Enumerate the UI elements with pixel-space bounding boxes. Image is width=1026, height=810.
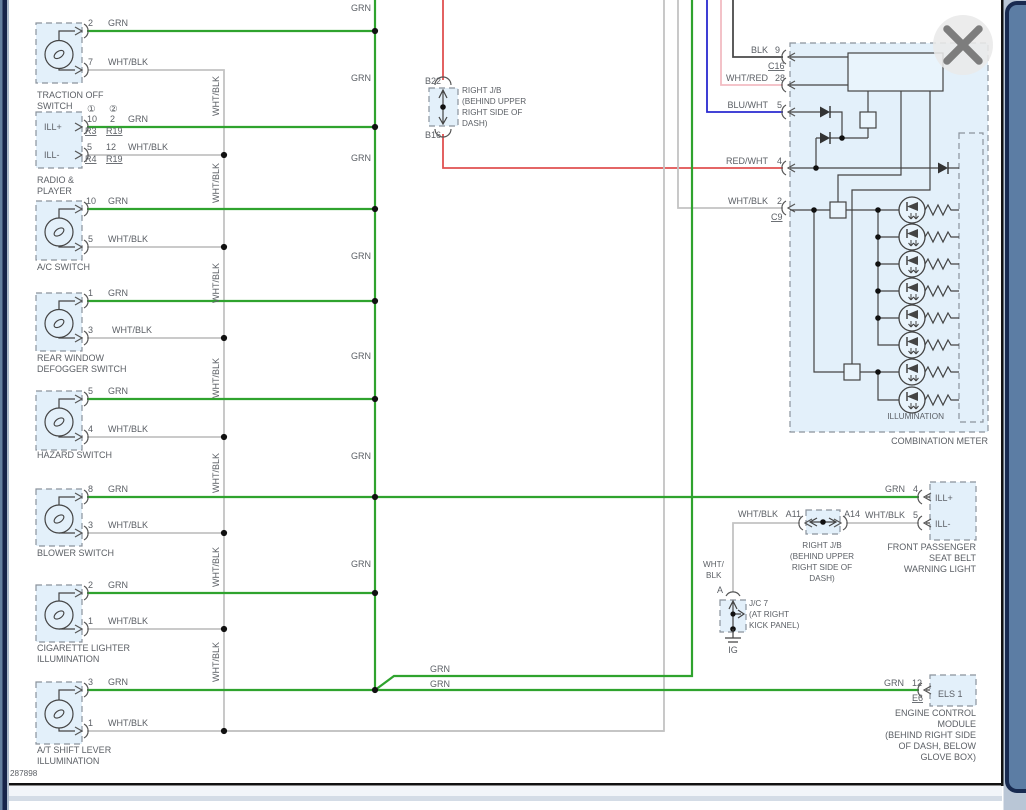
lamp-icon — [899, 305, 925, 331]
pin-number: 2 — [777, 196, 782, 206]
wire-color-label: WHT/BLK — [108, 57, 148, 67]
radio-ill-minus-label: ILL- — [44, 150, 60, 160]
component-label: FRONT PASSENGER — [887, 542, 976, 552]
pin-number: 10 — [86, 196, 96, 206]
pin-number: 4 — [913, 484, 918, 494]
whtblk-bus-label: WHT/BLK — [211, 76, 221, 116]
grn-branch-label: GRN — [430, 679, 450, 689]
pin-number: 5 — [88, 386, 93, 396]
pin-number: 2 — [88, 580, 93, 590]
grn-bus-label: GRN — [351, 3, 371, 13]
bulb-icon — [45, 601, 73, 629]
lamp-icon — [899, 332, 925, 358]
component-label: RIGHT J/B — [462, 86, 502, 95]
bulb-icon — [45, 505, 73, 533]
pin-number: 1 — [88, 616, 93, 626]
pin-number: 12 — [912, 678, 922, 688]
wire-color-label: GRN — [108, 484, 128, 494]
lamp-icon — [899, 197, 925, 223]
pin-number: 2 — [110, 114, 115, 124]
pin-number: 9 — [775, 45, 780, 55]
pin-number: 28 — [775, 73, 785, 83]
lamp-icon — [899, 359, 925, 385]
component-label: A/C SWITCH — [37, 262, 90, 272]
pin-number: 1 — [88, 718, 93, 728]
component-label: RIGHT SIDE OF — [462, 108, 522, 117]
component-label: (BEHIND UPPER — [790, 552, 854, 561]
connector-ref: R4 — [85, 154, 97, 164]
component-label: CIGARETTE LIGHTER — [37, 643, 131, 653]
grn-bus-label: GRN — [351, 153, 371, 163]
pin-number: 1 — [88, 288, 93, 298]
component-label: ILLUMINATION — [37, 756, 99, 766]
grn-bus-label: GRN — [351, 451, 371, 461]
connector-id: A — [717, 585, 723, 595]
wire-color-label: BLK — [751, 45, 768, 55]
wire-color-label: WHT/BLK — [108, 424, 148, 434]
whtblk-bus-label: WHT/BLK — [211, 358, 221, 398]
scrollbar-panel[interactable] — [1007, 3, 1026, 791]
component-block — [844, 364, 860, 380]
pin-number: 5 — [777, 100, 782, 110]
component-label: PLAYER — [37, 186, 72, 196]
component-label: SWITCH — [37, 101, 73, 111]
pin-number: 2 — [88, 18, 93, 28]
bulb-icon — [45, 218, 73, 246]
component-label: REAR WINDOW — [37, 353, 105, 363]
connector-ref: R19 — [106, 126, 123, 136]
wire-color-label: WHT/BLK — [108, 616, 148, 626]
lamp-icon — [899, 224, 925, 250]
component-label: KICK PANEL) — [749, 621, 800, 630]
pin-number: 3 — [88, 520, 93, 530]
lamp-icon — [899, 387, 925, 413]
radio-ill-plus-label: ILL+ — [44, 122, 62, 132]
component-label: HAZARD SWITCH — [37, 450, 112, 460]
wire-color-label: RED/WHT — [726, 156, 768, 166]
pin-number: 5 — [87, 142, 92, 152]
page-gap — [9, 786, 1002, 796]
component-label: A/T SHIFT LEVER — [37, 745, 112, 755]
wire-color-label: WHT/BLK — [128, 142, 168, 152]
pin-number: 3 — [88, 677, 93, 687]
page-bottom-border — [9, 783, 1002, 786]
bulb-icon — [45, 310, 73, 338]
wire-color-label: WHT/ — [703, 560, 725, 569]
component-label: DASH) — [809, 574, 835, 583]
connector-ref: E6 — [912, 693, 923, 703]
lamp-icon — [899, 278, 925, 304]
page-right-border — [1001, 0, 1004, 786]
whtblk-bus-label: WHT/BLK — [211, 642, 221, 682]
component-label: ILLUMINATION — [37, 654, 99, 664]
component-label: (BEHIND UPPER — [462, 97, 526, 106]
pin-number: 5 — [913, 510, 918, 520]
component-label: ENGINE CONTROL — [895, 708, 976, 718]
wire-color-label: BLU/WHT — [728, 100, 769, 110]
pin-number: 4 — [88, 424, 93, 434]
bulb-icon — [45, 408, 73, 436]
pin-number: 12 — [106, 142, 116, 152]
component-label: WARNING LIGHT — [904, 564, 977, 574]
component-label: DASH) — [462, 119, 488, 128]
wire-color-label: WHT/BLK — [108, 718, 148, 728]
pin-number: 4 — [777, 156, 782, 166]
component-block — [860, 112, 876, 128]
component-label: RIGHT J/B — [802, 541, 842, 550]
bulb-icon — [45, 700, 73, 728]
connector-id: B22 — [425, 76, 441, 86]
component-label: DEFOGGER SWITCH — [37, 364, 127, 374]
bulb-icon — [45, 41, 73, 69]
component-label: MODULE — [937, 719, 976, 729]
whtblk-bus-label: WHT/BLK — [211, 163, 221, 203]
wire-color-label: GRN — [108, 580, 128, 590]
diagram-id: 287898 — [10, 769, 38, 778]
lamp-icon — [899, 251, 925, 277]
connector-id: A11 — [786, 509, 801, 519]
component-label: GLOVE BOX) — [920, 752, 976, 762]
frame-left-outer — [0, 0, 3, 810]
grn-bus-label: GRN — [351, 251, 371, 261]
component-label: COMBINATION METER — [891, 436, 988, 446]
wire-color-label: WHT/BLK — [738, 509, 778, 519]
grn-bus-label: GRN — [351, 73, 371, 83]
meter-module — [848, 53, 943, 91]
connector-id: B16 — [425, 130, 441, 140]
wire-color-label: WHT/BLK — [108, 520, 148, 530]
whtblk-bus-label: WHT/BLK — [211, 547, 221, 587]
component-label: BLOWER SWITCH — [37, 548, 114, 558]
terminal-label: ELS 1 — [938, 689, 963, 699]
component-label: RADIO & — [37, 175, 74, 185]
frame-left-highlight — [7, 0, 9, 810]
pin-number: 8 — [88, 484, 93, 494]
component-label: (BEHIND RIGHT SIDE — [885, 730, 976, 740]
connector-ref: R19 — [106, 154, 123, 164]
wire-color-label: GRN — [884, 678, 904, 688]
component-label: SEAT BELT — [929, 553, 977, 563]
connector-id: A14 — [844, 509, 860, 519]
close-button[interactable] — [933, 15, 993, 75]
wire-color-label: WHT/RED — [726, 73, 768, 83]
wiring-diagram-viewer: GRN GRN GRN GRN GRN GRN GRN WHT/BLK WHT/… — [0, 0, 1026, 810]
connector-ref: C9 — [771, 212, 783, 222]
wire-color-label: GRN — [108, 677, 128, 687]
pin-number: 3 — [88, 325, 93, 335]
terminal-label: ILL+ — [935, 493, 953, 503]
grn-bus-label: GRN — [351, 351, 371, 361]
wire-color-label: GRN — [108, 196, 128, 206]
connector-ref: R3 — [85, 126, 97, 136]
frame-left-inner — [3, 0, 8, 810]
connector-ref: C16 — [768, 61, 785, 71]
illumination-label: ILLUMINATION — [887, 412, 944, 421]
pin-number: 10 — [87, 114, 97, 124]
wire-color-label: GRN — [885, 484, 905, 494]
wire-color-label: WHT/BLK — [112, 325, 152, 335]
component-label: RIGHT SIDE OF — [792, 563, 852, 572]
component-label: TRACTION OFF — [37, 90, 104, 100]
whtblk-bus-label: WHT/BLK — [211, 453, 221, 493]
component-block — [830, 202, 846, 218]
wire-color-label: GRN — [108, 18, 128, 28]
wire-color-label: GRN — [128, 114, 148, 124]
next-page-edge — [9, 796, 1002, 801]
component-label: J/C 7 — [749, 599, 769, 608]
grn-branch-label: GRN — [430, 664, 450, 674]
wire-color-label: BLK — [706, 571, 722, 580]
wire-color-label: WHT/BLK — [865, 510, 905, 520]
whtblk-bus-label: WHT/BLK — [211, 263, 221, 303]
pin-number: 7 — [88, 57, 93, 67]
wire-color-label: WHT/BLK — [108, 234, 148, 244]
wire-color-label: GRN — [108, 288, 128, 298]
wire-color-label: GRN — [108, 386, 128, 396]
grn-bus-label: GRN — [351, 559, 371, 569]
component-label: (AT RIGHT — [749, 610, 789, 619]
wire-color-label: WHT/BLK — [728, 196, 768, 206]
terminal-label: ILL- — [935, 519, 951, 529]
pin-number: 5 — [88, 234, 93, 244]
component-label: OF DASH, BELOW — [898, 741, 976, 751]
ground-label: IG — [728, 645, 738, 655]
